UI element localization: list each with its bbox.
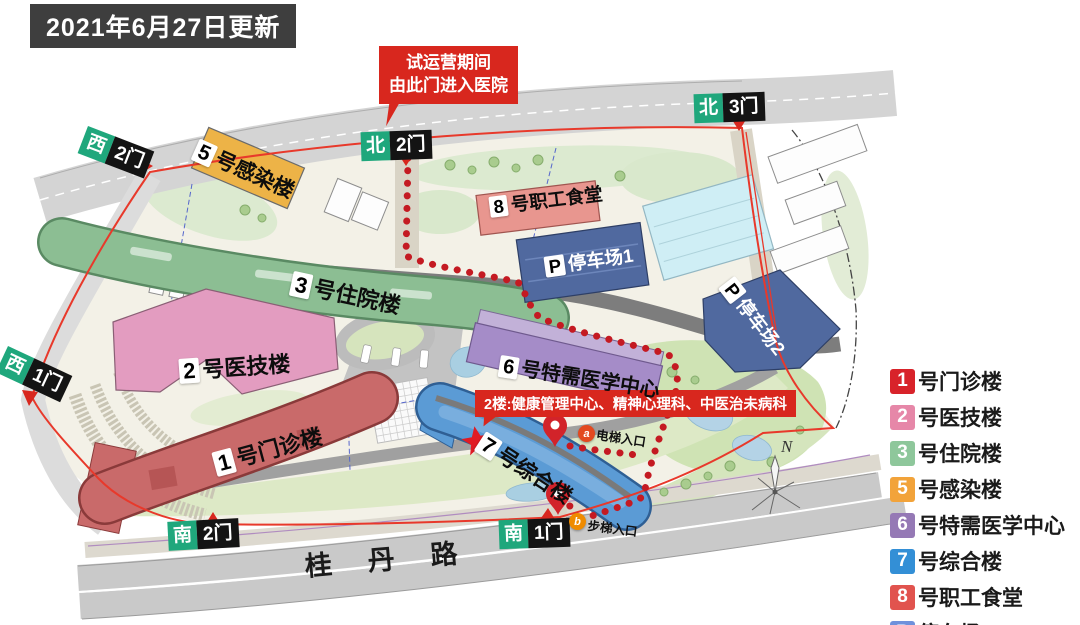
gate-north2-direction: 北 — [361, 131, 391, 161]
legend-badge-5: 5 — [890, 477, 915, 502]
gate-north2: 北2门 — [361, 130, 433, 161]
stairs-entrance-badge: b — [569, 513, 586, 530]
legend-row-3: 3 号住院楼 — [890, 438, 1065, 468]
callout-line1: 试运营期间 — [389, 52, 508, 75]
legend-label-p: 停车场 — [918, 618, 981, 625]
gate-north3-direction: 北 — [694, 93, 724, 123]
gate-north3-number: 3门 — [723, 92, 766, 122]
legend: 1 号门诊楼 2 号医技楼 3 号住院楼 5 号感染楼 6 号特需医学中心 7 … — [890, 366, 1065, 625]
label-building-2-num: 2 — [178, 358, 200, 384]
legend-badge-7: 7 — [890, 549, 915, 574]
legend-badge-p: P — [890, 621, 915, 625]
legend-row-8: 8 号职工食堂 — [890, 582, 1065, 612]
legend-label-8: 号职工食堂 — [918, 582, 1023, 612]
legend-label-7: 号综合楼 — [918, 546, 1002, 576]
gate-south2: 南2门 — [167, 518, 239, 551]
legend-label-6: 号特需医学中心 — [918, 510, 1065, 540]
label-building-8-num: 8 — [488, 195, 509, 218]
gate-south1-direction: 南 — [499, 519, 529, 549]
gate-south2-direction: 南 — [167, 520, 197, 550]
legend-label-3: 号住院楼 — [918, 438, 1002, 468]
gate-north2-number: 2门 — [390, 130, 433, 160]
legend-row-7: 7 号综合楼 — [890, 546, 1065, 576]
gate-south2-number: 2门 — [196, 518, 239, 549]
legend-label-1: 号门诊楼 — [918, 366, 1002, 396]
legend-row-2: 2 号医技楼 — [890, 402, 1065, 432]
legend-label-2: 号医技楼 — [918, 402, 1002, 432]
gate-south1: 南1门 — [499, 518, 571, 549]
legend-badge-8: 8 — [890, 585, 915, 610]
callout-line2: 由此门进入医院 — [389, 75, 508, 98]
update-banner: 2021年6月27日更新 — [30, 4, 296, 48]
callout-tail — [386, 97, 428, 132]
legend-badge-1: 1 — [890, 369, 915, 394]
elevator-entrance-badge: a — [578, 425, 595, 442]
label-parking-1-num: P — [543, 254, 566, 278]
label-building-6-num: 6 — [498, 355, 520, 380]
label-building-3-num: 3 — [289, 271, 314, 300]
gate-south1-number: 1门 — [528, 518, 571, 548]
hospital-campus-map: 2021年6月27日更新 试运营期间 由此门进入医院 2楼:健康管理中心、精神心… — [0, 0, 1080, 625]
gate-north3: 北3门 — [694, 92, 766, 123]
legend-row-1: 1 号门诊楼 — [890, 366, 1065, 396]
label-building-2-name: 号医技楼 — [202, 351, 292, 382]
compass-north-label: N — [781, 437, 792, 457]
trial-operation-callout: 试运营期间 由此门进入医院 — [379, 46, 518, 104]
legend-badge-2: 2 — [890, 405, 915, 430]
legend-row-6: 6 号特需医学中心 — [890, 510, 1065, 540]
floor2-note-tail — [483, 410, 502, 427]
legend-badge-6: 6 — [890, 513, 915, 538]
legend-row-4: 5 号感染楼 — [890, 474, 1065, 504]
legend-badge-3: 3 — [890, 441, 915, 466]
legend-label-5: 号感染楼 — [918, 474, 1002, 504]
legend-row-p: P 停车场 — [890, 618, 1065, 625]
